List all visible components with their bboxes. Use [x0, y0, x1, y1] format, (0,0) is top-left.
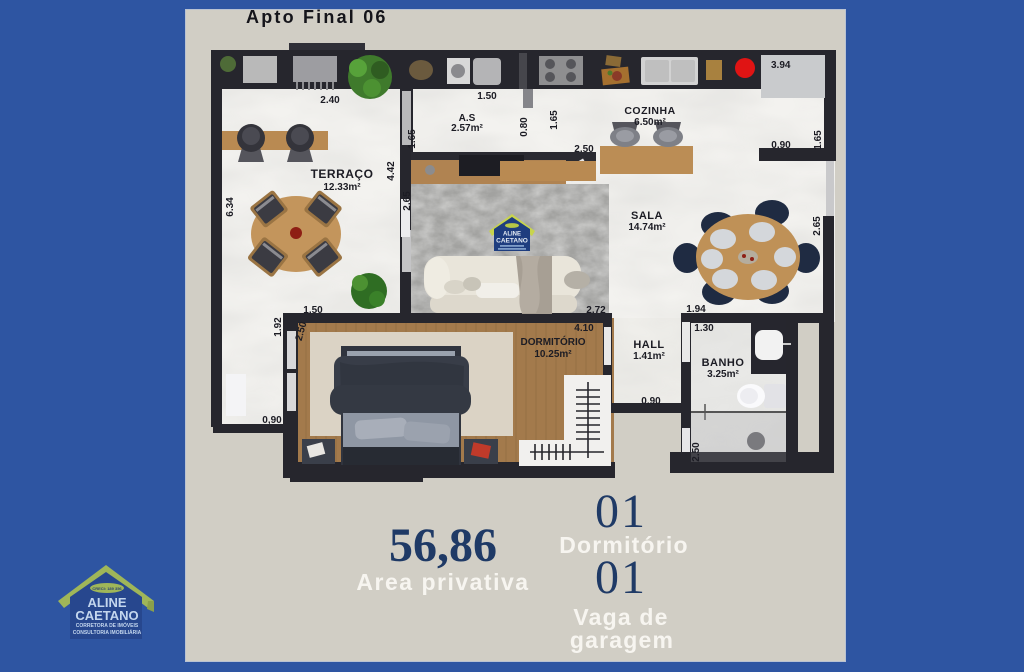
svg-text:BANHO: BANHO: [702, 357, 745, 369]
svg-text:TERRAÇO: TERRAÇO: [311, 167, 374, 181]
svg-text:CRECI: 189 356: CRECI: 189 356: [92, 586, 122, 591]
svg-text:1.41m²: 1.41m²: [633, 351, 665, 362]
svg-text:3.25m²: 3.25m²: [707, 369, 739, 380]
svg-text:1.65: 1.65: [407, 129, 418, 149]
svg-text:DORMITÓRIO: DORMITÓRIO: [521, 335, 586, 348]
svg-text:1.30: 1.30: [694, 323, 714, 334]
svg-text:HALL: HALL: [633, 339, 664, 351]
svg-text:CAETANO: CAETANO: [496, 238, 528, 245]
svg-text:14.74m²: 14.74m²: [628, 222, 666, 233]
svg-text:SALA: SALA: [631, 210, 663, 222]
svg-text:01: 01: [595, 551, 647, 604]
svg-text:2.65: 2.65: [812, 216, 823, 236]
svg-text:0.80: 0.80: [519, 117, 530, 137]
svg-text:Apto Final 06: Apto Final 06: [246, 7, 388, 27]
svg-text:3.94: 3.94: [771, 60, 791, 71]
svg-text:1.92: 1.92: [273, 317, 284, 337]
svg-text:1.50: 1.50: [477, 91, 497, 102]
svg-text:56,86: 56,86: [389, 519, 497, 572]
svg-text:2.72: 2.72: [586, 305, 606, 316]
svg-text:2.40: 2.40: [320, 95, 340, 106]
svg-text:1.65: 1.65: [813, 130, 824, 150]
svg-text:01: 01: [595, 485, 647, 538]
svg-text:12.33m²: 12.33m²: [323, 182, 361, 193]
svg-text:CAETANO: CAETANO: [75, 608, 138, 623]
svg-text:2.65: 2.65: [402, 191, 413, 211]
svg-text:0,90: 0,90: [262, 415, 282, 426]
svg-text:Area privativa: Area privativa: [356, 569, 529, 595]
svg-text:1.65: 1.65: [549, 110, 560, 130]
svg-text:0.90: 0.90: [771, 140, 791, 151]
svg-text:1.94: 1.94: [686, 304, 706, 315]
svg-text:0.90: 0.90: [641, 396, 661, 407]
svg-text:6.50m²: 6.50m²: [634, 117, 666, 128]
svg-text:4.42: 4.42: [386, 161, 397, 181]
svg-text:garagem: garagem: [570, 627, 674, 653]
svg-text:COZINHA: COZINHA: [624, 105, 675, 117]
svg-text:6.34: 6.34: [225, 197, 236, 217]
svg-text:CONSULTORIA IMOBILIÁRIA: CONSULTORIA IMOBILIÁRIA: [73, 629, 142, 636]
svg-text:4.10: 4.10: [574, 323, 594, 334]
svg-text:10.25m²: 10.25m²: [534, 349, 572, 360]
svg-text:1.50: 1.50: [303, 305, 323, 316]
svg-text:CORRETORA DE IMÓVEIS: CORRETORA DE IMÓVEIS: [76, 621, 139, 629]
svg-text:2.50: 2.50: [691, 442, 702, 462]
svg-text:2.57m²: 2.57m²: [451, 123, 483, 134]
svg-text:2.50: 2.50: [574, 144, 594, 155]
